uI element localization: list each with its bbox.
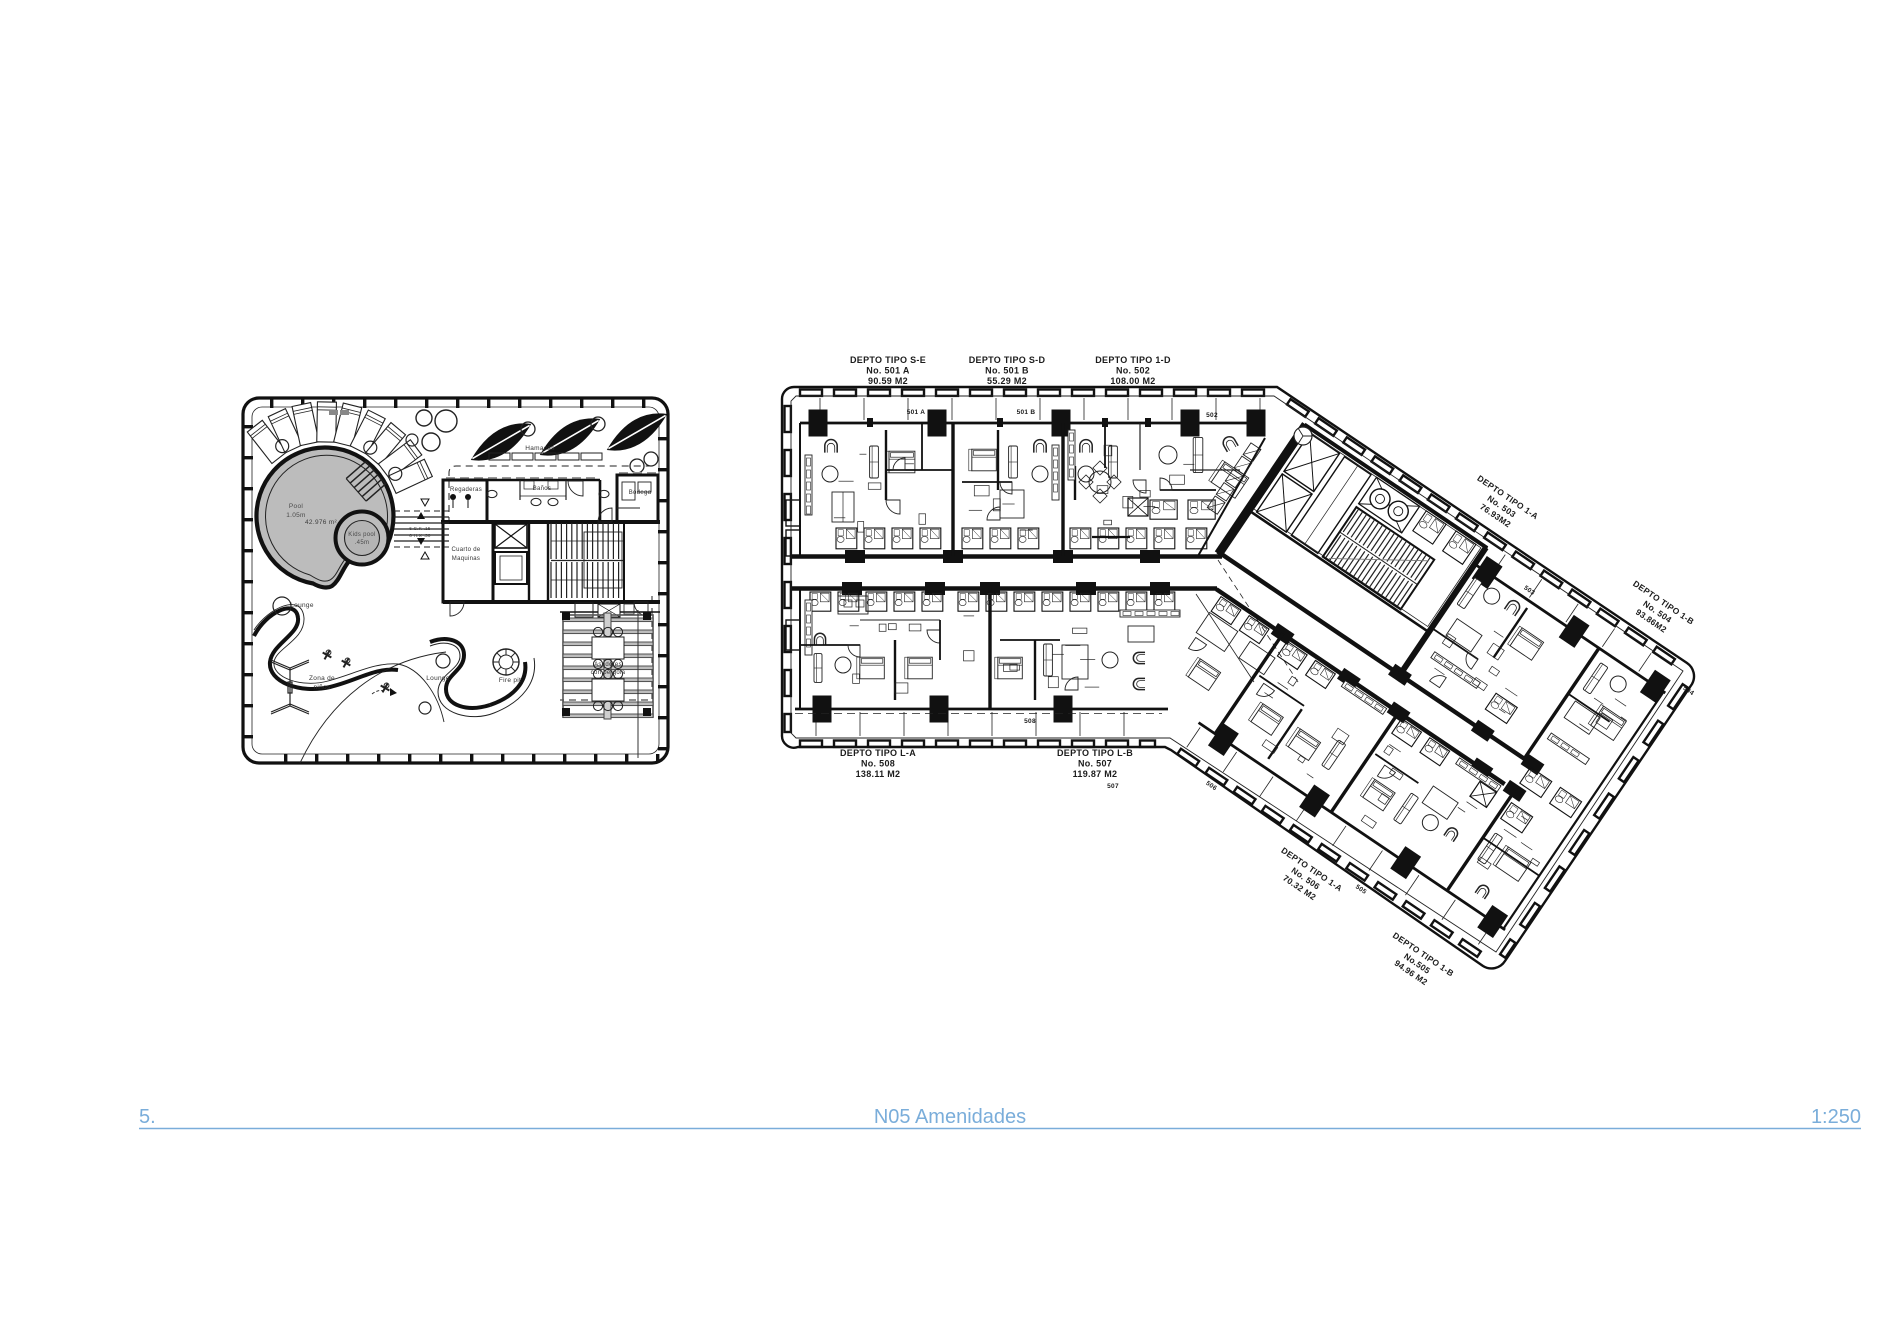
svg-text:1:250: 1:250 (1811, 1106, 1861, 1128)
svg-text:Regaderas: Regaderas (450, 487, 482, 493)
svg-text:55.29 M2: 55.29 M2 (987, 376, 1027, 386)
svg-text:501 B: 501 B (1017, 409, 1036, 416)
svg-text:Maquinas: Maquinas (452, 556, 480, 562)
svg-text:DEPTO TIPO S-E: DEPTO TIPO S-E (850, 355, 926, 365)
svg-text:Pool: Pool (289, 503, 303, 510)
svg-text:DEPTO TIPO S-D: DEPTO TIPO S-D (969, 355, 1046, 365)
svg-text:No. 508: No. 508 (861, 759, 895, 769)
svg-text:502: 502 (1206, 412, 1218, 419)
svg-text:Bodega: Bodega (629, 490, 652, 496)
svg-text:con pergola: con pergola (591, 670, 626, 676)
svg-text:DEPTO TIPO L-B: DEPTO TIPO L-B (1057, 748, 1133, 758)
svg-text:Asadores: Asadores (594, 662, 622, 668)
svg-text:niños: niños (313, 684, 330, 691)
svg-text:No. 502: No. 502 (1116, 366, 1150, 376)
svg-text:No. 501 A: No. 501 A (866, 366, 910, 376)
svg-text:501 A: 501 A (907, 409, 926, 416)
svg-text:DEPTO TIPO L-A: DEPTO TIPO L-A (840, 748, 916, 758)
svg-text:No. 501 B: No. 501 B (985, 366, 1029, 376)
svg-text:6 H.X .30: 6 H.X .30 (409, 533, 431, 538)
svg-text:Lounge: Lounge (290, 602, 314, 609)
svg-text:N05 Amenidades: N05 Amenidades (874, 1106, 1026, 1128)
svg-text:Kids pool: Kids pool (348, 532, 375, 538)
svg-text:.45m: .45m (355, 540, 370, 546)
svg-text:507: 507 (1107, 783, 1119, 790)
svg-text:42.976 m²: 42.976 m² (305, 519, 338, 526)
svg-text:Lounge: Lounge (426, 675, 450, 682)
svg-text:119.87 M2: 119.87 M2 (1073, 769, 1118, 779)
svg-text:Hamacas: Hamacas (525, 445, 555, 452)
svg-text:DEPTO TIPO 1-D: DEPTO TIPO 1-D (1095, 355, 1171, 365)
svg-text:Fire pit: Fire pit (499, 677, 521, 684)
svg-text:Cuarto de: Cuarto de (451, 547, 480, 553)
svg-text:138.11 M2: 138.11 M2 (856, 769, 901, 779)
svg-text:108.00 M2: 108.00 M2 (1110, 376, 1155, 386)
svg-text:1.05m: 1.05m (286, 512, 306, 519)
svg-text:Baños: Baños (533, 486, 552, 492)
svg-text:Zona de: Zona de (309, 675, 335, 682)
svg-text:5.: 5. (139, 1106, 156, 1128)
svg-text:6 C.K .15: 6 C.K .15 (409, 526, 431, 531)
svg-text:90.59 M2: 90.59 M2 (868, 376, 908, 386)
svg-text:508: 508 (1024, 718, 1036, 725)
svg-text:No. 507: No. 507 (1078, 759, 1112, 769)
